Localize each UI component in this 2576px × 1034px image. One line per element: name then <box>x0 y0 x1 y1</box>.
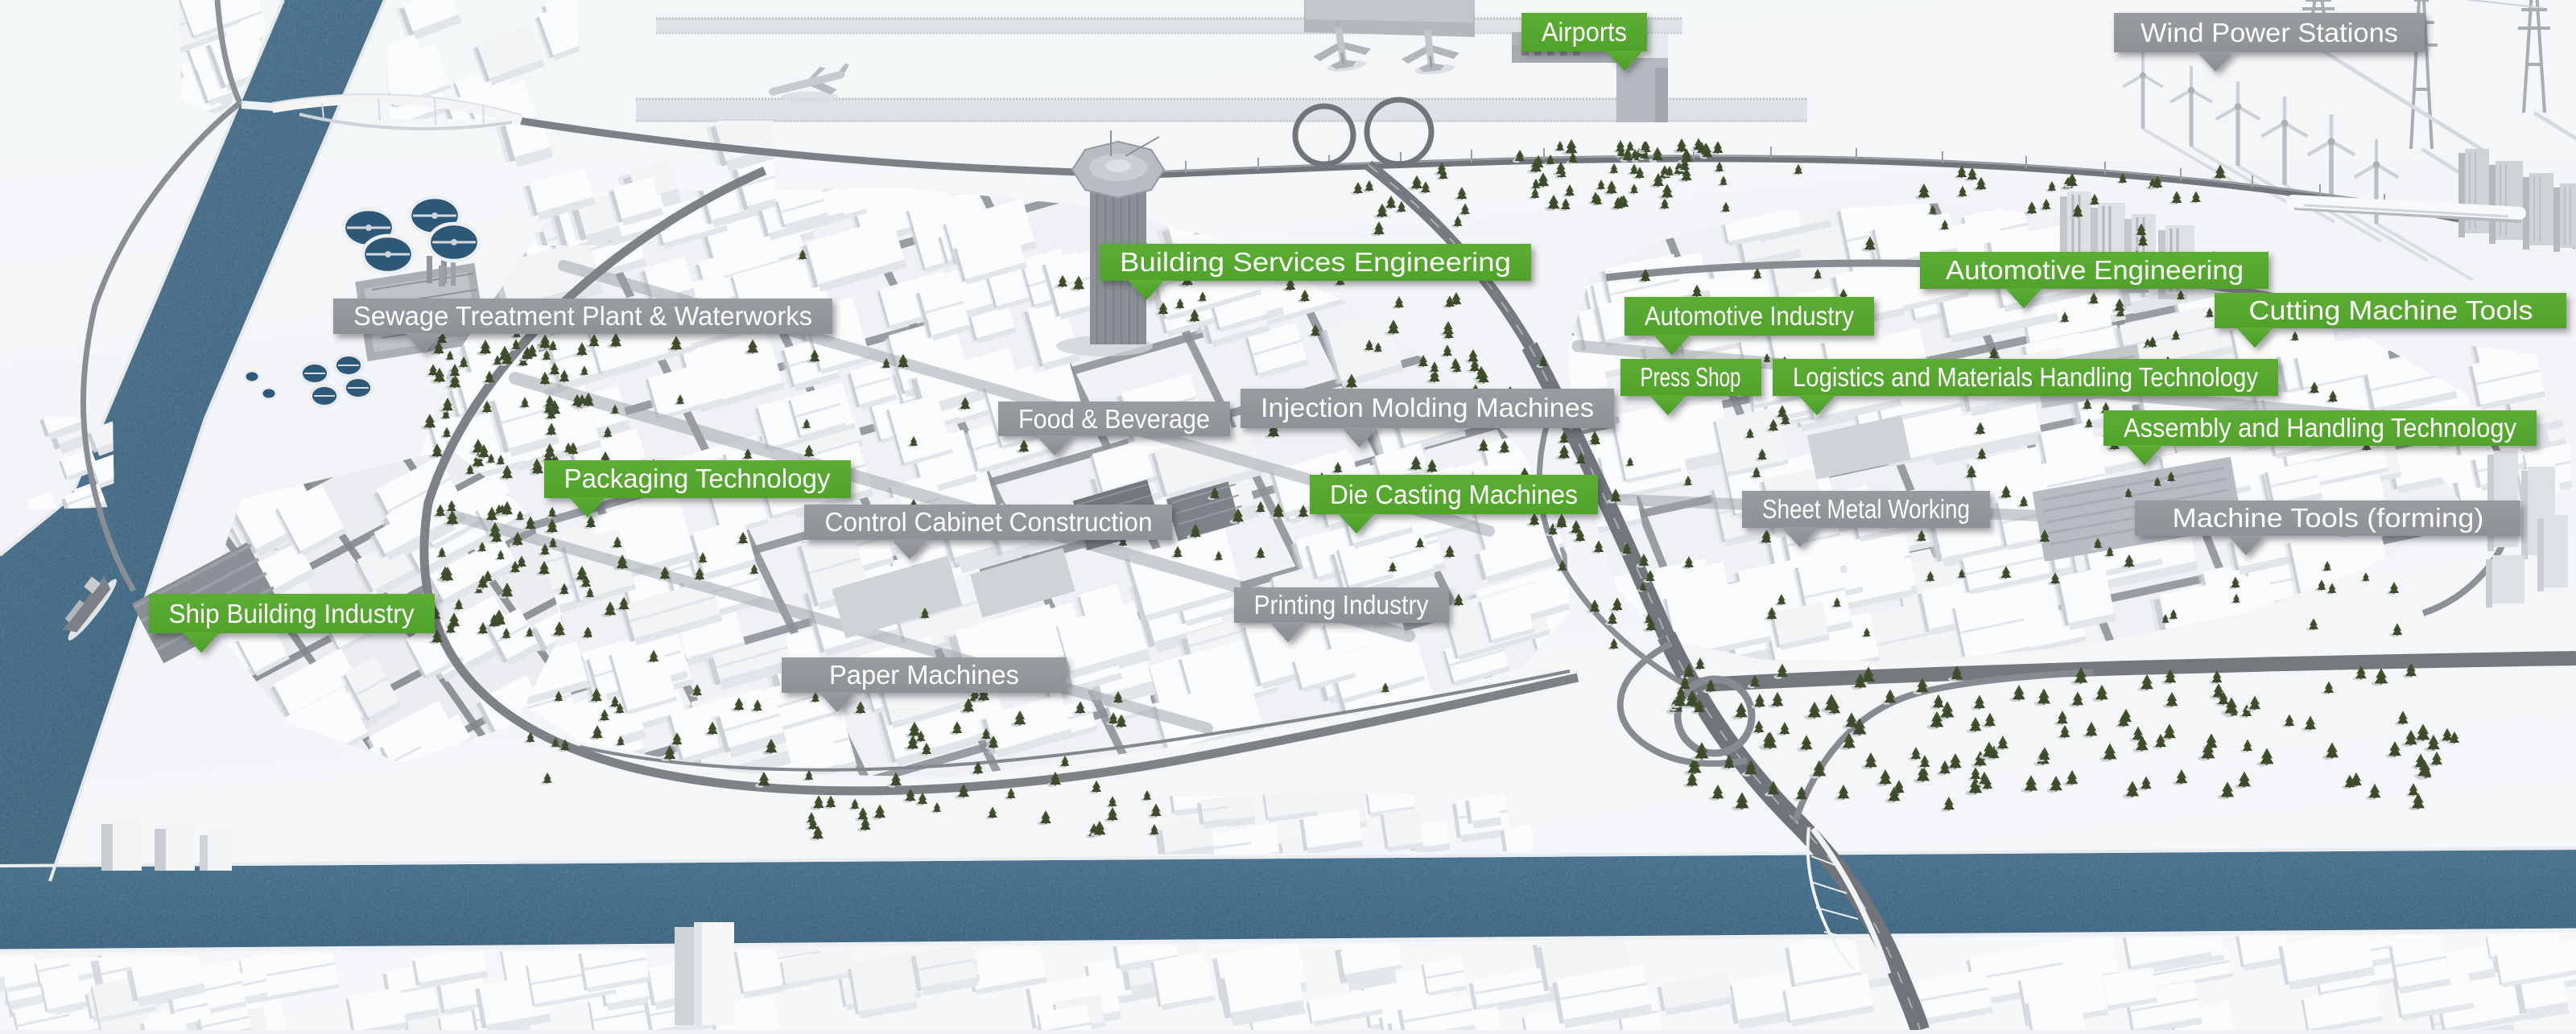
svg-text:Packaging Technology: Packaging Technology <box>564 463 831 493</box>
svg-text:Die Casting Machines: Die Casting Machines <box>1330 480 1578 509</box>
svg-text:Wind Power Stations: Wind Power Stations <box>2140 18 2398 47</box>
svg-text:Logistics and Materials Handli: Logistics and Materials Handling Technol… <box>1793 362 2258 392</box>
svg-text:Sewage Treatment Plant & Water: Sewage Treatment Plant & Waterworks <box>353 301 812 331</box>
svg-text:Machine Tools (forming): Machine Tools (forming) <box>2173 503 2484 533</box>
svg-text:Paper Machines: Paper Machines <box>829 660 1019 690</box>
svg-text:Automotive Engineering: Automotive Engineering <box>1946 255 2244 285</box>
svg-text:Printing Industry: Printing Industry <box>1254 590 1429 620</box>
svg-text:Ship Building Industry: Ship Building Industry <box>169 599 415 628</box>
svg-text:Airports: Airports <box>1542 17 1627 47</box>
svg-text:Press Shop: Press Shop <box>1641 362 1741 392</box>
svg-text:Assembly and Handling Technolo: Assembly and Handling Technology <box>2124 413 2516 443</box>
svg-text:Automotive Industry: Automotive Industry <box>1645 301 1854 331</box>
svg-text:Control Cabinet Construction: Control Cabinet Construction <box>825 507 1153 537</box>
svg-text:Food & Beverage: Food & Beverage <box>1018 404 1210 434</box>
svg-text:Building Services Engineering: Building Services Engineering <box>1120 247 1511 277</box>
svg-text:Injection Molding Machines: Injection Molding Machines <box>1261 393 1594 422</box>
svg-text:Cutting Machine Tools: Cutting Machine Tools <box>2249 295 2533 325</box>
svg-text:Sheet Metal Working: Sheet Metal Working <box>1762 494 1970 524</box>
